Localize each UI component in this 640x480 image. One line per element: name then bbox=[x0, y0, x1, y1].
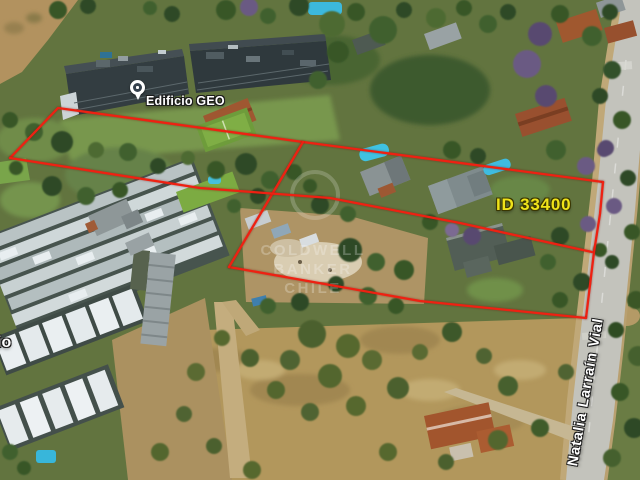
watermark-text: COLDWELL BANKER CHILE bbox=[246, 241, 380, 298]
aerial-photo-stage: COLDWELL BANKER CHILE Edificio GEO ID 33… bbox=[0, 0, 640, 480]
building-label: Edificio GEO bbox=[146, 94, 225, 108]
partial-label-left-edge: io bbox=[0, 334, 11, 352]
aerial-photo bbox=[0, 0, 640, 480]
watermark-line: COLDWELL bbox=[246, 241, 380, 260]
map-pin-icon bbox=[130, 80, 145, 95]
watermark-logo-ring bbox=[290, 170, 340, 220]
watermark-line: CHILE bbox=[246, 279, 380, 298]
property-id-label: ID 33400 bbox=[496, 195, 571, 215]
watermark-line: BANKER bbox=[246, 260, 380, 279]
